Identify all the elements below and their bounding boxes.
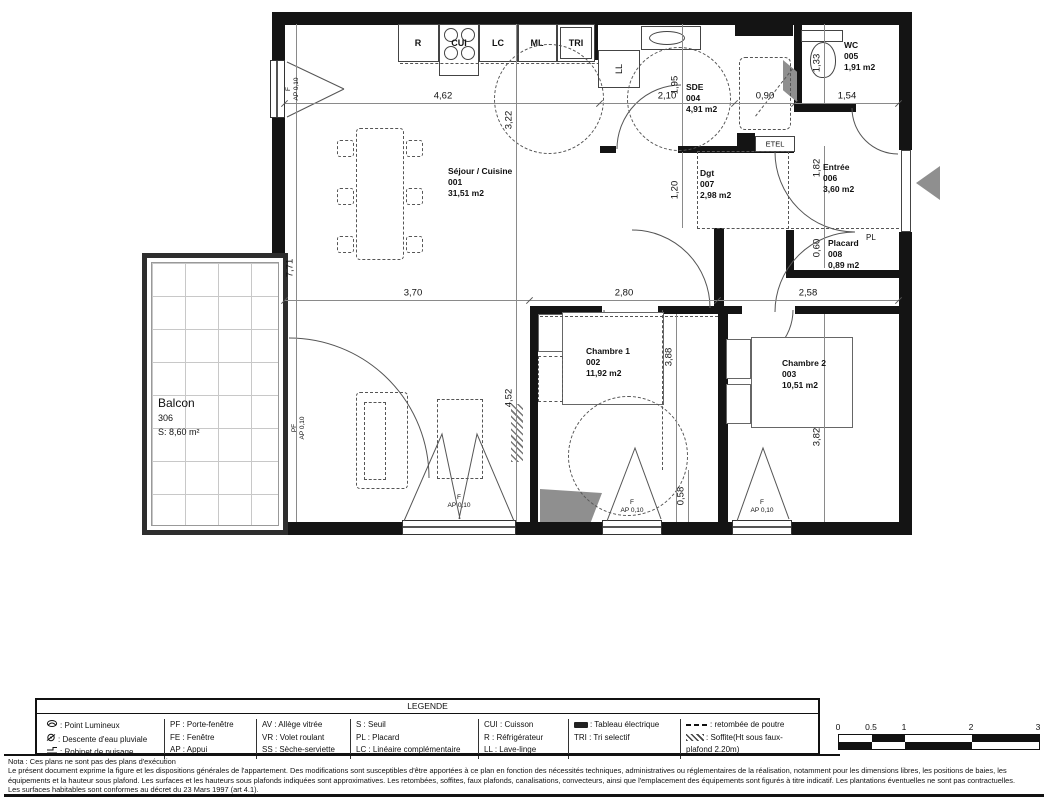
legend-label: : Point Lumineux xyxy=(60,721,120,730)
window-label: F AP 0,10 xyxy=(750,499,773,515)
chair xyxy=(337,236,354,253)
wall xyxy=(792,522,912,535)
door-arc xyxy=(632,230,710,308)
room-number: 005 xyxy=(844,51,875,62)
dimension-line xyxy=(682,152,683,228)
room-number: 004 xyxy=(686,93,717,104)
room-name: Entrée xyxy=(823,162,854,173)
note-line: Le présent document exprime la figure et… xyxy=(8,766,1015,775)
legend-item: : retombée de poutre xyxy=(686,719,807,732)
balcony-tile-grid xyxy=(151,262,279,526)
washbasin-bowl xyxy=(649,31,685,45)
scale-tick: 0 xyxy=(836,722,841,732)
legend-col-beam: : retombée de poutre : Soffite(Ht sous f… xyxy=(681,719,812,759)
wall xyxy=(600,146,616,153)
scale-cell xyxy=(839,742,872,749)
room-name: Placard xyxy=(828,238,859,249)
cooktop-label: CUI xyxy=(451,38,467,48)
room-label-wc: WC 005 1,91 m2 xyxy=(844,40,875,73)
room-area: 10,51 m2 xyxy=(782,380,826,391)
toilet-cistern xyxy=(801,30,843,42)
legend-item: : Soffite(Ht sous faux-plafond 2.20m) xyxy=(686,732,807,757)
wall xyxy=(899,232,912,535)
soffit-hatch xyxy=(511,404,523,462)
chair xyxy=(337,140,354,157)
dimension: 1,33 xyxy=(812,54,823,73)
dimension: 2,80 xyxy=(615,288,634,299)
legend: LEGENDE : Point Lumineux : Descente d'ea… xyxy=(35,698,820,755)
room-area: 3,60 m2 xyxy=(823,184,854,195)
dimension: 7,71 xyxy=(285,259,296,278)
beam-dash-icon xyxy=(686,724,708,727)
fridge-label: R xyxy=(415,38,422,48)
room-number: 001 xyxy=(448,177,512,188)
window-label: F AP 0,10 xyxy=(285,77,301,100)
legend-title: LEGENDE xyxy=(37,700,818,714)
scale-tick: 3 xyxy=(1036,722,1041,732)
scale-bar: 0 0.5 1 2 3 xyxy=(838,722,1038,754)
room-area: S: 8,60 m² xyxy=(158,427,200,437)
legend-col-cui: CUI : Cuisson R : Réfrigérateur LL : Lav… xyxy=(479,719,569,759)
chair xyxy=(406,236,423,253)
scale-cell xyxy=(972,742,1039,749)
wall xyxy=(735,20,793,36)
scale-cell xyxy=(872,735,905,742)
scale-cell xyxy=(905,742,972,749)
room-number: 306 xyxy=(158,413,173,423)
scale-tick: 1 xyxy=(902,722,907,732)
legend-label: : retombée de poutre xyxy=(710,720,784,729)
room-area: 11,92 m2 xyxy=(586,368,630,379)
legend-item: CUI : Cuisson xyxy=(484,719,563,732)
wall xyxy=(737,133,755,153)
room-area: 0,89 m2 xyxy=(828,260,859,271)
legend-item: PF : Porte-fenêtre xyxy=(170,719,251,732)
room-label-sde: SDE 004 4,91 m2 xyxy=(686,82,717,115)
dimension: 0,58 xyxy=(676,487,687,506)
scale-bar-cells xyxy=(838,734,1040,750)
room-area: 4,91 m2 xyxy=(686,104,717,115)
dimension: 1,82 xyxy=(812,159,823,178)
chair xyxy=(406,140,423,157)
rain-drain-icon xyxy=(46,733,56,747)
window xyxy=(270,60,285,118)
legend-col-pf: PF : Porte-fenêtre FE : Fenêtre AP : App… xyxy=(165,719,257,759)
window-type: F xyxy=(750,499,773,507)
electrical-panel-icon xyxy=(574,722,588,728)
window-label: PF AP 0,10 xyxy=(291,416,307,439)
wall xyxy=(530,306,538,522)
beam-dashed-line xyxy=(540,316,718,317)
window-sill: AP 0,10 xyxy=(620,507,643,515)
dimension: 0,60 xyxy=(812,239,823,258)
placard-pl-label: PL xyxy=(866,233,876,242)
room-number: 006 xyxy=(823,173,854,184)
room-name: Dgt xyxy=(700,168,731,179)
entry-door-leaf xyxy=(901,150,911,232)
note-line: équipements et la hauteur sous plafond. … xyxy=(8,776,1015,785)
room-number: 007 xyxy=(700,179,731,190)
electrical-panel-label: ETEL xyxy=(766,140,785,149)
dimension-line xyxy=(285,300,899,301)
window-type: F xyxy=(620,499,643,507)
room-area: 31,51 m2 xyxy=(448,188,512,199)
nightstand xyxy=(726,384,751,424)
dimension: 3,70 xyxy=(404,288,423,299)
burner-icon xyxy=(461,46,475,60)
legend-item: AV : Allège vitrée xyxy=(262,719,345,732)
dimension: 1,95 xyxy=(670,76,681,95)
dimension: 2,58 xyxy=(799,288,818,299)
legend-item: S : Seuil xyxy=(356,719,473,732)
dimension: 3,22 xyxy=(504,111,515,130)
dimension: 1,20 xyxy=(670,181,681,200)
legend-item: PL : Placard xyxy=(356,732,473,745)
window-label: F AP 0,10 xyxy=(620,499,643,515)
sofa-seat xyxy=(364,402,386,480)
chair xyxy=(337,188,354,205)
legend-item: : Descente d'eau pluviale xyxy=(46,733,159,747)
window-label: F AP 0,10 xyxy=(447,494,470,510)
room-label-entree: Entrée 006 3,60 m2 xyxy=(823,162,854,195)
coffee-table xyxy=(437,399,483,479)
room-name: Chambre 2 xyxy=(782,358,826,369)
divider xyxy=(4,754,840,756)
window-sill: AP 0,10 xyxy=(750,507,773,515)
scale-tick: 0.5 xyxy=(865,722,877,732)
legend-item: : Point Lumineux xyxy=(46,719,159,733)
window-type: PF xyxy=(291,416,299,439)
room-number: 002 xyxy=(586,357,630,368)
dimension: 4,62 xyxy=(434,91,453,102)
floor-plan-page: Balcon 306 S: 8,60 m² R CUI LC ML TRI LL… xyxy=(0,0,1048,800)
laundry-label: LL xyxy=(614,64,624,74)
wall xyxy=(786,270,899,278)
scale-tick: 2 xyxy=(969,722,974,732)
wall xyxy=(899,12,912,150)
room-label-placard: Placard 008 0,89 m2 xyxy=(828,238,859,271)
lc-label: LC xyxy=(492,38,504,48)
beam-dashed-line xyxy=(662,310,663,470)
divider xyxy=(4,794,1044,797)
legend-col-elec: : Tableau électrique TRI : Tri selectif xyxy=(569,719,681,759)
chair xyxy=(406,188,423,205)
entry-arrow-icon xyxy=(916,166,940,200)
dimension-line xyxy=(285,103,899,104)
room-name: Chambre 1 xyxy=(586,346,630,357)
window xyxy=(402,520,516,535)
window-sill: AP 0,10 xyxy=(299,416,307,439)
nightstand xyxy=(726,339,751,379)
door-arc xyxy=(852,108,898,154)
scale-cell xyxy=(872,742,905,749)
room-name: Séjour / Cuisine xyxy=(448,166,512,177)
wall xyxy=(794,104,856,112)
legend-col-av: AV : Allège vitrée VR : Volet roulant SS… xyxy=(257,719,351,759)
room-number: 003 xyxy=(782,369,826,380)
dimension-line xyxy=(688,470,689,522)
dimension-line xyxy=(824,24,825,104)
room-area: 1,91 m2 xyxy=(844,62,875,73)
legend-item: FE : Fenêtre xyxy=(170,732,251,745)
legend-label: : Descente d'eau pluviale xyxy=(58,734,147,743)
room-name: WC xyxy=(844,40,875,51)
balcony xyxy=(142,253,288,535)
room-name: SDE xyxy=(686,82,717,93)
legend-col-symbols: : Point Lumineux : Descente d'eau pluvia… xyxy=(41,719,165,759)
window-sill: AP 0,10 xyxy=(293,77,301,100)
dimension: 1,54 xyxy=(838,91,857,102)
wall xyxy=(272,522,404,535)
room-name: Balcon xyxy=(158,396,195,410)
legend-item: R : Réfrigérateur xyxy=(484,732,563,745)
dimension: 4,52 xyxy=(504,389,515,408)
turning-circle xyxy=(568,396,688,516)
wall xyxy=(658,306,742,314)
scale-cell xyxy=(972,735,1039,742)
tri-label: TRI xyxy=(569,38,584,48)
burner-icon xyxy=(444,46,458,60)
dimension-line xyxy=(824,314,825,522)
dimension-line xyxy=(516,24,517,522)
light-icon xyxy=(46,719,58,733)
wall xyxy=(516,522,604,535)
wall xyxy=(795,306,899,314)
scale-cell xyxy=(905,735,972,742)
dimension-line xyxy=(682,24,683,146)
window xyxy=(732,520,792,535)
nightstand xyxy=(538,356,563,402)
beam-dashed-line xyxy=(786,228,899,229)
dimension: 3,88 xyxy=(664,348,675,367)
turning-circle xyxy=(494,44,604,154)
room-area: 2,98 m2 xyxy=(700,190,731,201)
room-number: 008 xyxy=(828,249,859,260)
room-label-dgt: Dgt 007 2,98 m2 xyxy=(700,168,731,201)
window-type: F xyxy=(285,77,293,100)
wall xyxy=(272,12,285,60)
legend-item: : Tableau électrique xyxy=(574,719,675,732)
nightstand xyxy=(538,314,563,352)
dimension: 3,82 xyxy=(812,428,823,447)
room-label-chambre1: Chambre 1 002 11,92 m2 xyxy=(586,346,630,379)
soffit-hatch-icon xyxy=(686,734,704,741)
room-label-chambre2: Chambre 2 003 10,51 m2 xyxy=(782,358,826,391)
notes: Nota : Ces plans ne sont pas des plans d… xyxy=(8,757,1015,795)
dimension: 0,90 xyxy=(756,91,775,102)
legend-item: VR : Volet roulant xyxy=(262,732,345,745)
legend-item: TRI : Tri selectif xyxy=(574,732,675,745)
window xyxy=(602,520,662,535)
legend-label: : Tableau électrique xyxy=(590,720,659,729)
window-sill: AP 0,10 xyxy=(447,502,470,510)
scale-cell xyxy=(839,735,872,742)
note-line: Nota : Ces plans ne sont pas des plans d… xyxy=(8,757,1015,766)
window-type: F xyxy=(447,494,470,502)
wall xyxy=(662,522,734,535)
legend-col-s: S : Seuil PL : Placard LC : Linéaire com… xyxy=(351,719,479,759)
dining-table xyxy=(356,128,404,260)
room-label-sejour: Séjour / Cuisine 001 31,51 m2 xyxy=(448,166,512,199)
